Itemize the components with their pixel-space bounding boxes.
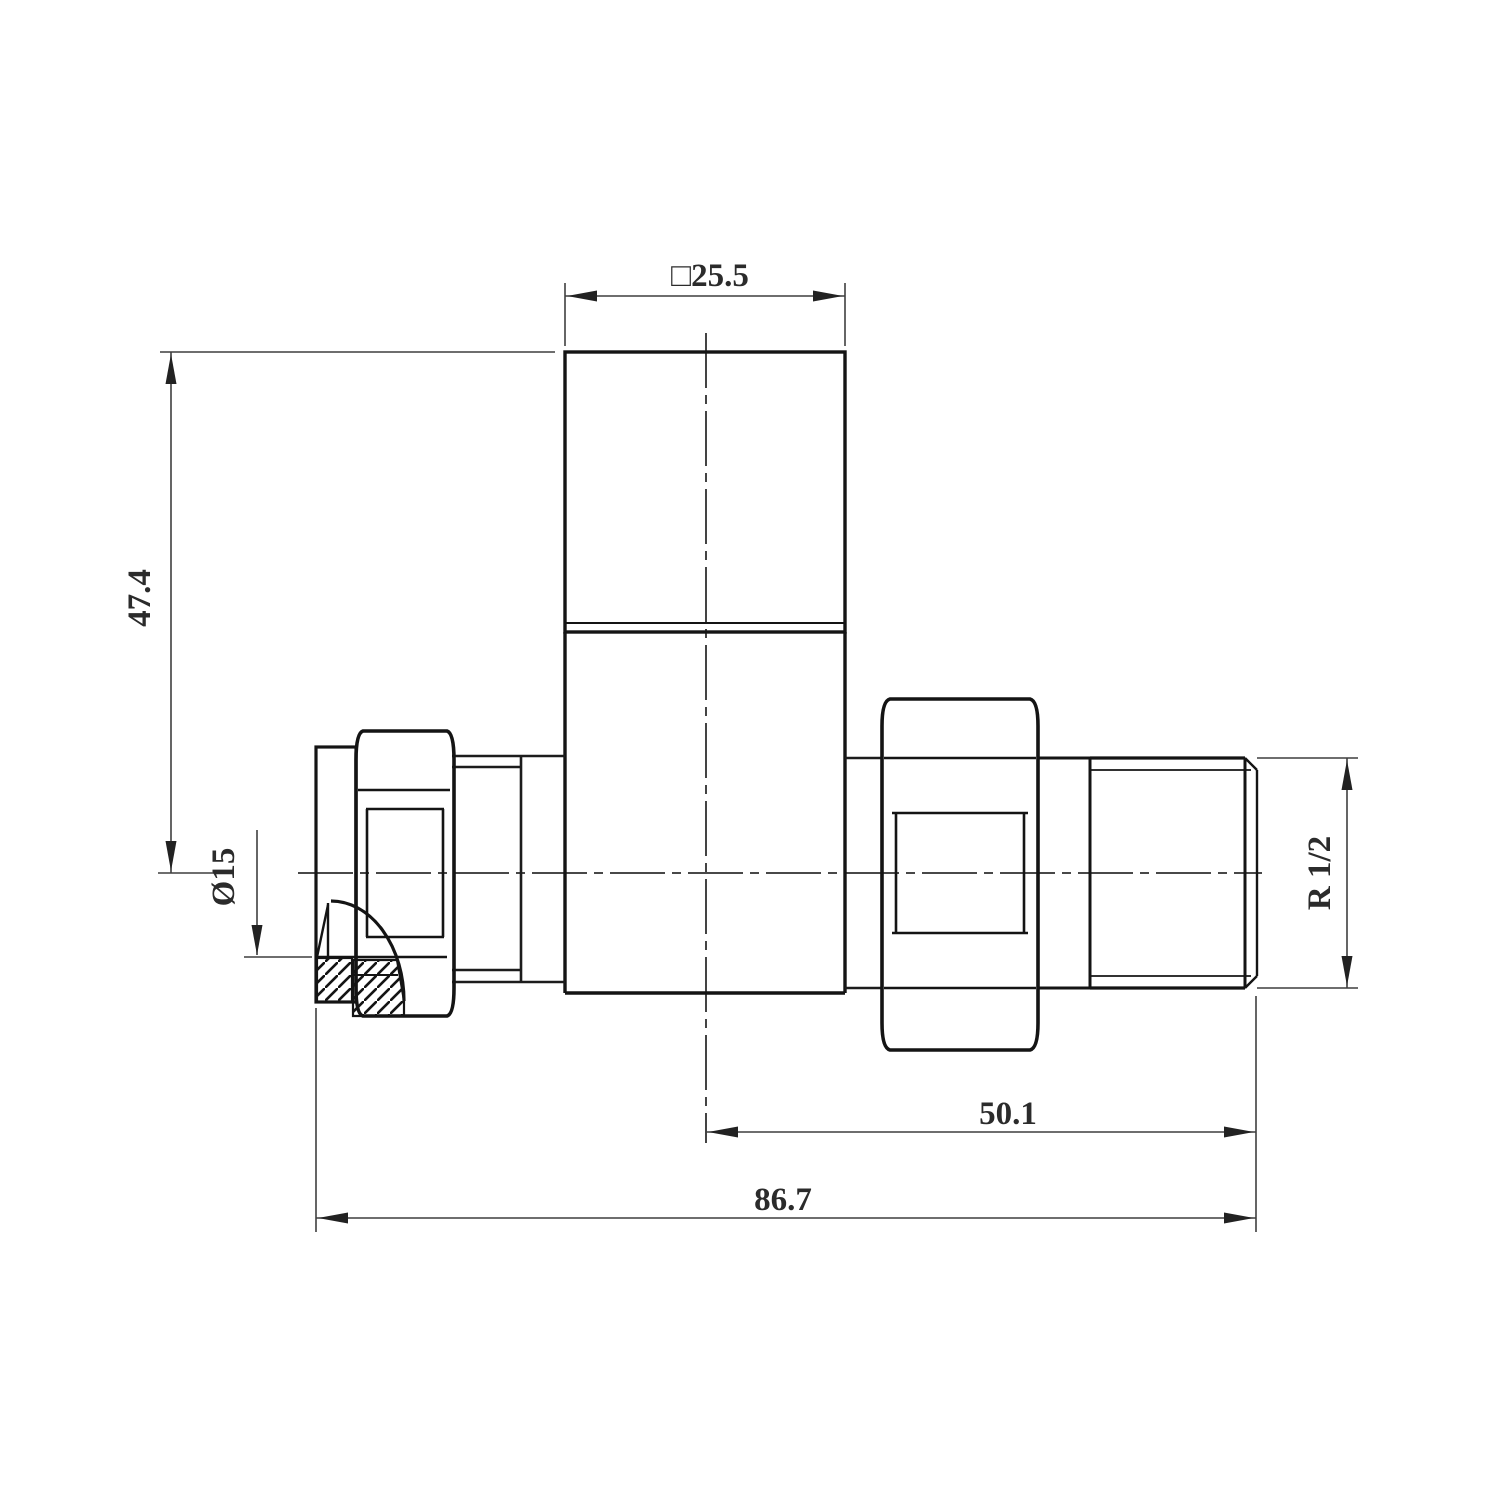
section-cutaway (317, 901, 404, 1016)
hatch-region-nut (353, 960, 404, 1016)
arrowhead (567, 291, 597, 302)
dim-label-overall-length: 86.7 (754, 1182, 812, 1218)
dim-label-height: 47.4 (122, 569, 158, 627)
arrowhead (708, 1127, 738, 1138)
valve-body (565, 632, 845, 993)
arrowhead (1342, 956, 1353, 986)
right-union-nut (882, 699, 1038, 1050)
dim-overall-length: 86.7 (316, 1008, 1256, 1232)
valve-head (565, 352, 845, 632)
arrowhead (166, 354, 177, 384)
technical-drawing-canvas: □25.5 47.4 Ø15 R 1/2 (0, 0, 1500, 1500)
hatch-region-flange (317, 958, 352, 1002)
dim-label-center-to-end: 50.1 (979, 1096, 1037, 1132)
dim-label-bore: Ø15 (206, 848, 242, 907)
dim-height: 47.4 (122, 352, 555, 873)
dim-bore: Ø15 (206, 830, 312, 957)
arrowhead (166, 841, 177, 871)
dim-label-head-width: □25.5 (671, 258, 749, 294)
arrowhead (813, 291, 843, 302)
arrowhead (318, 1213, 348, 1224)
arrowhead (252, 925, 263, 955)
arrowhead (1224, 1127, 1254, 1138)
left-port-cylinder (452, 756, 565, 982)
dim-thread: R 1/2 (1257, 758, 1358, 988)
center-lines (298, 333, 1262, 1143)
dim-head-width: □25.5 (565, 258, 845, 346)
valve-drawing-svg: □25.5 47.4 Ø15 R 1/2 (0, 0, 1500, 1500)
dim-label-thread: R 1/2 (1302, 836, 1338, 910)
arrowhead (1224, 1213, 1254, 1224)
arrowhead (1342, 760, 1353, 790)
